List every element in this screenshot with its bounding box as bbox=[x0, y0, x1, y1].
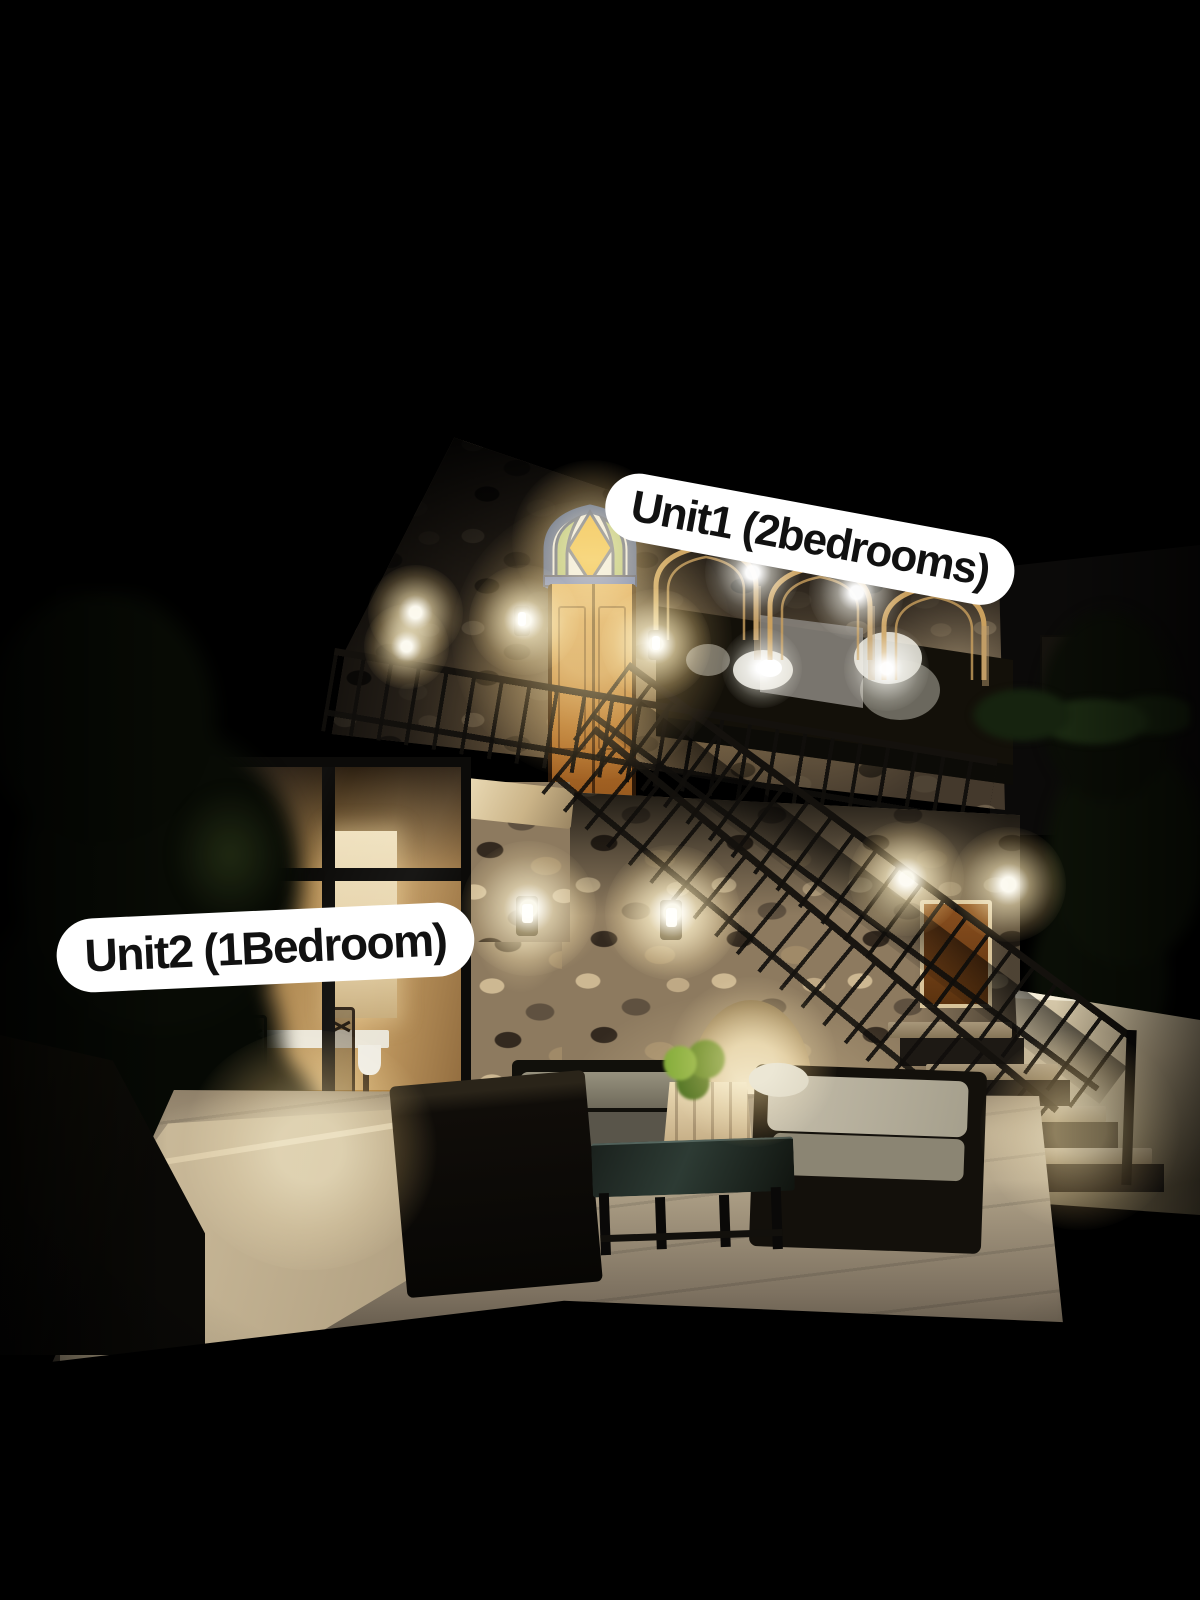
table-leg bbox=[771, 1187, 783, 1249]
table-leg bbox=[599, 1193, 611, 1255]
coffee-table-shelf bbox=[600, 1229, 782, 1242]
lantern-flame bbox=[652, 636, 660, 650]
wall-lantern bbox=[648, 630, 664, 660]
wall-lantern bbox=[514, 606, 530, 636]
table-leg bbox=[719, 1195, 731, 1247]
night-photo: Unit1 (2bedrooms) Unit2 (1Bedroom) bbox=[0, 0, 1200, 1600]
lantern-flame bbox=[666, 908, 677, 927]
wall-lantern bbox=[660, 900, 682, 940]
palm-fronds bbox=[950, 650, 1190, 780]
wall-lantern bbox=[516, 896, 538, 936]
coffee-table bbox=[591, 1137, 797, 1258]
outdoor-armchair-left bbox=[389, 1070, 603, 1298]
table-leg bbox=[655, 1197, 667, 1249]
lantern-flame bbox=[522, 904, 533, 923]
coffee-table-top bbox=[591, 1137, 795, 1198]
lantern-flame bbox=[518, 612, 526, 626]
sofa-seat-cushion bbox=[771, 1133, 964, 1182]
potted-plant bbox=[650, 1028, 736, 1106]
